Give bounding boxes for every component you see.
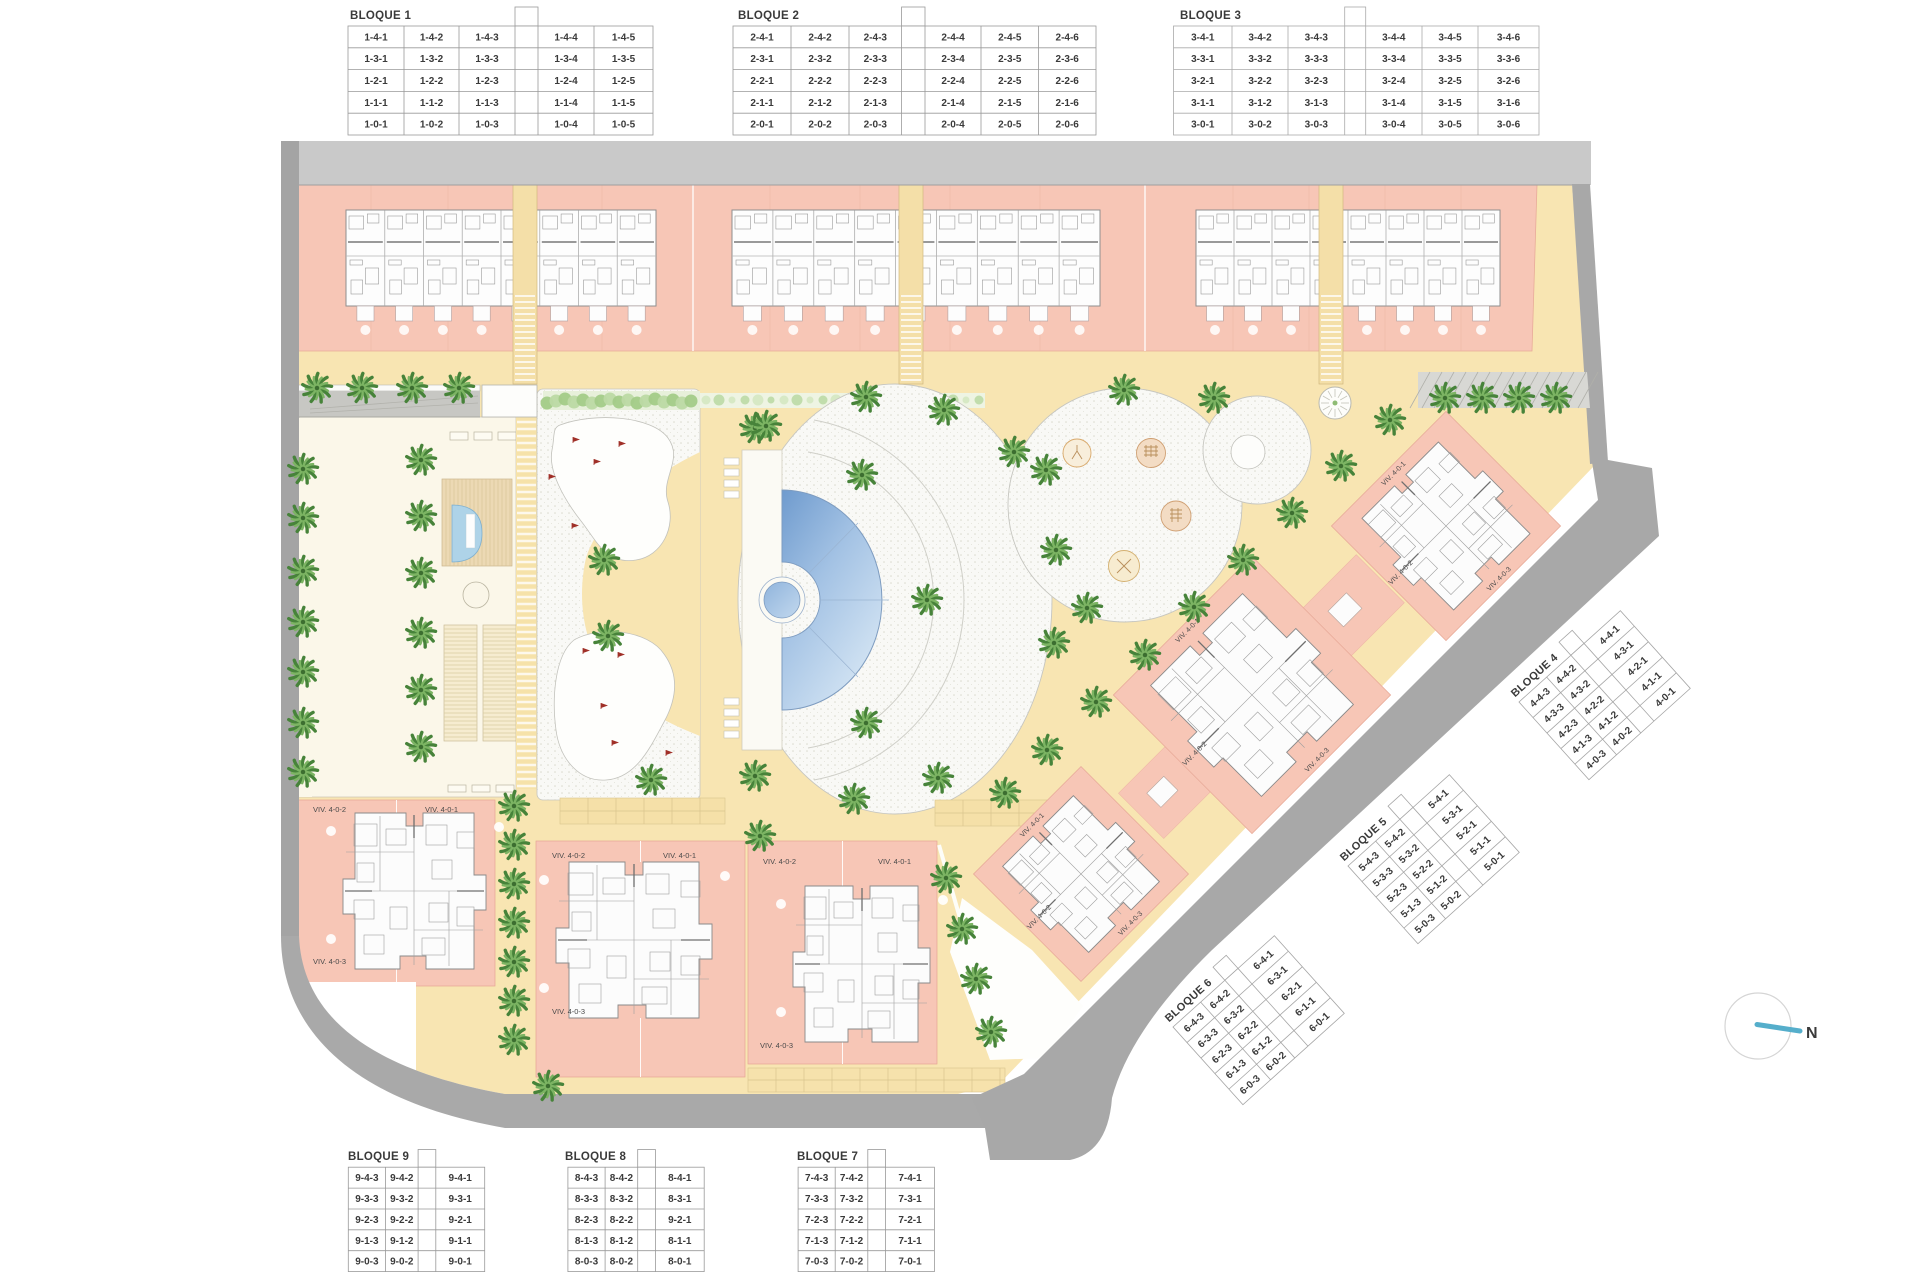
svg-text:3-3-5: 3-3-5 <box>1438 54 1462 65</box>
svg-text:3-4-3: 3-4-3 <box>1305 32 1329 43</box>
svg-text:BLOQUE 8: BLOQUE 8 <box>565 1151 626 1163</box>
svg-text:7-3-1: 7-3-1 <box>898 1194 922 1205</box>
svg-text:3-4-1: 3-4-1 <box>1191 32 1215 43</box>
svg-text:1-4-2: 1-4-2 <box>420 32 444 43</box>
svg-text:VIV. 4-0-3: VIV. 4-0-3 <box>313 957 346 966</box>
svg-text:2-1-2: 2-1-2 <box>808 98 832 109</box>
svg-text:VIV. 4-0-2: VIV. 4-0-2 <box>763 857 796 866</box>
svg-text:1-0-3: 1-0-3 <box>475 120 499 131</box>
svg-text:2-0-6: 2-0-6 <box>1056 120 1080 131</box>
svg-text:2-2-6: 2-2-6 <box>1056 76 1080 87</box>
svg-text:2-4-1: 2-4-1 <box>750 32 774 43</box>
svg-text:3-4-2: 3-4-2 <box>1248 32 1272 43</box>
svg-text:3-2-4: 3-2-4 <box>1382 76 1406 87</box>
svg-text:9-3-3: 9-3-3 <box>355 1194 379 1205</box>
svg-text:1-4-3: 1-4-3 <box>475 32 499 43</box>
svg-text:2-2-5: 2-2-5 <box>998 76 1022 87</box>
svg-text:2-3-5: 2-3-5 <box>998 54 1022 65</box>
svg-text:9-3-2: 9-3-2 <box>390 1194 414 1205</box>
svg-text:VIV. 4-0-1: VIV. 4-0-1 <box>878 857 911 866</box>
svg-text:9-0-3: 9-0-3 <box>355 1257 379 1268</box>
svg-text:1-1-3: 1-1-3 <box>475 98 499 109</box>
svg-text:2-3-2: 2-3-2 <box>808 54 832 65</box>
svg-text:9-2-1: 9-2-1 <box>449 1215 473 1226</box>
svg-text:BLOQUE 2: BLOQUE 2 <box>738 10 799 22</box>
svg-text:3-1-2: 3-1-2 <box>1248 98 1272 109</box>
svg-text:1-0-4: 1-0-4 <box>554 120 578 131</box>
svg-text:9-4-2: 9-4-2 <box>390 1173 414 1184</box>
svg-text:3-3-1: 3-3-1 <box>1191 54 1215 65</box>
svg-text:7-0-2: 7-0-2 <box>840 1257 864 1268</box>
svg-text:8-1-3: 8-1-3 <box>575 1236 599 1247</box>
svg-text:2-0-3: 2-0-3 <box>864 120 888 131</box>
svg-text:1-2-1: 1-2-1 <box>364 76 388 87</box>
svg-text:1-1-2: 1-1-2 <box>420 98 444 109</box>
svg-text:2-1-1: 2-1-1 <box>750 98 774 109</box>
svg-text:VIV. 4-0-1: VIV. 4-0-1 <box>663 851 696 860</box>
svg-text:8-0-3: 8-0-3 <box>575 1257 599 1268</box>
svg-text:1-1-1: 1-1-1 <box>364 98 388 109</box>
svg-text:8-3-3: 8-3-3 <box>575 1194 599 1205</box>
svg-text:7-4-2: 7-4-2 <box>840 1173 864 1184</box>
svg-text:8-4-3: 8-4-3 <box>575 1173 599 1184</box>
svg-text:2-3-6: 2-3-6 <box>1056 54 1080 65</box>
svg-text:1-4-1: 1-4-1 <box>364 32 388 43</box>
svg-text:3-1-6: 3-1-6 <box>1497 98 1521 109</box>
svg-text:BLOQUE 7: BLOQUE 7 <box>797 1151 858 1163</box>
svg-text:7-2-1: 7-2-1 <box>898 1215 922 1226</box>
svg-text:3-2-1: 3-2-1 <box>1191 76 1215 87</box>
svg-text:N: N <box>1806 1025 1818 1042</box>
svg-text:2-2-3: 2-2-3 <box>864 76 888 87</box>
svg-text:9-0-1: 9-0-1 <box>449 1257 473 1268</box>
svg-text:3-1-5: 3-1-5 <box>1438 98 1462 109</box>
svg-text:2-3-4: 2-3-4 <box>941 54 965 65</box>
svg-text:2-1-5: 2-1-5 <box>998 98 1022 109</box>
svg-text:7-2-2: 7-2-2 <box>840 1215 864 1226</box>
svg-text:1-3-1: 1-3-1 <box>364 54 388 65</box>
svg-text:1-4-4: 1-4-4 <box>554 32 578 43</box>
svg-text:2-2-1: 2-2-1 <box>750 76 774 87</box>
svg-text:3-2-2: 3-2-2 <box>1248 76 1272 87</box>
svg-text:1-2-5: 1-2-5 <box>612 76 636 87</box>
svg-text:VIV. 4-0-2: VIV. 4-0-2 <box>313 805 346 814</box>
svg-text:2-1-3: 2-1-3 <box>864 98 888 109</box>
svg-text:3-3-3: 3-3-3 <box>1305 54 1329 65</box>
svg-text:3-1-4: 3-1-4 <box>1382 98 1406 109</box>
svg-text:9-2-2: 9-2-2 <box>390 1215 414 1226</box>
svg-text:3-3-4: 3-3-4 <box>1382 54 1406 65</box>
svg-text:8-4-1: 8-4-1 <box>668 1173 692 1184</box>
svg-text:2-1-4: 2-1-4 <box>941 98 965 109</box>
svg-text:7-4-3: 7-4-3 <box>805 1173 829 1184</box>
svg-text:8-3-2: 8-3-2 <box>610 1194 634 1205</box>
svg-text:BLOQUE 9: BLOQUE 9 <box>348 1151 409 1163</box>
svg-text:8-0-2: 8-0-2 <box>610 1257 634 1268</box>
svg-text:VIV. 4-0-2: VIV. 4-0-2 <box>552 851 585 860</box>
svg-text:9-0-2: 9-0-2 <box>390 1257 414 1268</box>
svg-text:9-1-1: 9-1-1 <box>449 1236 473 1247</box>
svg-text:2-0-1: 2-0-1 <box>750 120 774 131</box>
svg-text:2-0-2: 2-0-2 <box>808 120 832 131</box>
svg-text:7-2-3: 7-2-3 <box>805 1215 829 1226</box>
svg-text:7-3-3: 7-3-3 <box>805 1194 829 1205</box>
svg-text:1-3-5: 1-3-5 <box>612 54 636 65</box>
svg-text:3-2-6: 3-2-6 <box>1497 76 1521 87</box>
svg-text:8-1-2: 8-1-2 <box>610 1236 634 1247</box>
svg-text:1-3-3: 1-3-3 <box>475 54 499 65</box>
svg-text:VIV. 4-0-3: VIV. 4-0-3 <box>760 1041 793 1050</box>
svg-text:3-3-6: 3-3-6 <box>1497 54 1521 65</box>
svg-text:VIV. 4-0-1: VIV. 4-0-1 <box>425 805 458 814</box>
svg-text:7-1-2: 7-1-2 <box>840 1236 864 1247</box>
svg-text:9-1-3: 9-1-3 <box>355 1236 379 1247</box>
svg-text:8-1-1: 8-1-1 <box>668 1236 692 1247</box>
svg-text:9-4-3: 9-4-3 <box>355 1173 379 1184</box>
svg-text:3-0-2: 3-0-2 <box>1248 120 1272 131</box>
svg-text:3-2-3: 3-2-3 <box>1305 76 1329 87</box>
svg-text:3-4-5: 3-4-5 <box>1438 32 1462 43</box>
svg-text:8-0-1: 8-0-1 <box>668 1257 692 1268</box>
svg-text:8-4-2: 8-4-2 <box>610 1173 634 1184</box>
svg-text:1-3-2: 1-3-2 <box>420 54 444 65</box>
svg-text:9-3-1: 9-3-1 <box>449 1194 473 1205</box>
svg-text:2-4-2: 2-4-2 <box>808 32 832 43</box>
svg-text:7-0-1: 7-0-1 <box>898 1257 922 1268</box>
svg-text:2-0-5: 2-0-5 <box>998 120 1022 131</box>
svg-text:3-0-3: 3-0-3 <box>1305 120 1329 131</box>
svg-text:2-2-4: 2-2-4 <box>941 76 965 87</box>
svg-text:7-1-1: 7-1-1 <box>898 1236 922 1247</box>
svg-text:1-1-4: 1-1-4 <box>554 98 578 109</box>
svg-text:1-2-3: 1-2-3 <box>475 76 499 87</box>
svg-text:1-2-4: 1-2-4 <box>554 76 578 87</box>
svg-text:2-4-5: 2-4-5 <box>998 32 1022 43</box>
svg-text:2-0-4: 2-0-4 <box>941 120 965 131</box>
svg-text:3-1-1: 3-1-1 <box>1191 98 1215 109</box>
svg-text:2-1-6: 2-1-6 <box>1056 98 1080 109</box>
svg-text:7-1-3: 7-1-3 <box>805 1236 829 1247</box>
svg-text:3-4-4: 3-4-4 <box>1382 32 1406 43</box>
svg-text:3-1-3: 3-1-3 <box>1305 98 1329 109</box>
svg-text:9-4-1: 9-4-1 <box>449 1173 473 1184</box>
svg-text:3-0-6: 3-0-6 <box>1497 120 1521 131</box>
svg-text:3-2-5: 3-2-5 <box>1438 76 1462 87</box>
svg-text:7-3-2: 7-3-2 <box>840 1194 864 1205</box>
svg-text:2-3-3: 2-3-3 <box>864 54 888 65</box>
svg-text:3-4-6: 3-4-6 <box>1497 32 1521 43</box>
svg-text:2-2-2: 2-2-2 <box>808 76 832 87</box>
svg-text:1-3-4: 1-3-4 <box>554 54 578 65</box>
svg-text:3-0-4: 3-0-4 <box>1382 120 1406 131</box>
svg-text:3-3-2: 3-3-2 <box>1248 54 1272 65</box>
svg-text:BLOQUE 1: BLOQUE 1 <box>350 10 411 22</box>
svg-text:9-2-3: 9-2-3 <box>355 1215 379 1226</box>
svg-text:1-2-2: 1-2-2 <box>420 76 444 87</box>
svg-text:3-0-5: 3-0-5 <box>1438 120 1462 131</box>
svg-text:VIV. 4-0-3: VIV. 4-0-3 <box>552 1007 585 1016</box>
svg-text:1-4-5: 1-4-5 <box>612 32 636 43</box>
svg-text:8-2-2: 8-2-2 <box>610 1215 634 1226</box>
svg-text:2-4-6: 2-4-6 <box>1056 32 1080 43</box>
svg-text:2-4-3: 2-4-3 <box>864 32 888 43</box>
svg-text:1-1-5: 1-1-5 <box>612 98 636 109</box>
svg-text:9-2-1: 9-2-1 <box>668 1215 692 1226</box>
svg-text:7-4-1: 7-4-1 <box>898 1173 922 1184</box>
svg-text:8-2-3: 8-2-3 <box>575 1215 599 1226</box>
svg-text:8-3-1: 8-3-1 <box>668 1194 692 1205</box>
svg-text:3-0-1: 3-0-1 <box>1191 120 1215 131</box>
svg-text:2-3-1: 2-3-1 <box>750 54 774 65</box>
svg-text:BLOQUE 3: BLOQUE 3 <box>1180 10 1241 22</box>
svg-text:9-1-2: 9-1-2 <box>390 1236 414 1247</box>
svg-text:1-0-1: 1-0-1 <box>364 120 388 131</box>
svg-text:1-0-2: 1-0-2 <box>420 120 444 131</box>
svg-text:1-0-5: 1-0-5 <box>612 120 636 131</box>
svg-text:7-0-3: 7-0-3 <box>805 1257 829 1268</box>
svg-text:2-4-4: 2-4-4 <box>941 32 965 43</box>
